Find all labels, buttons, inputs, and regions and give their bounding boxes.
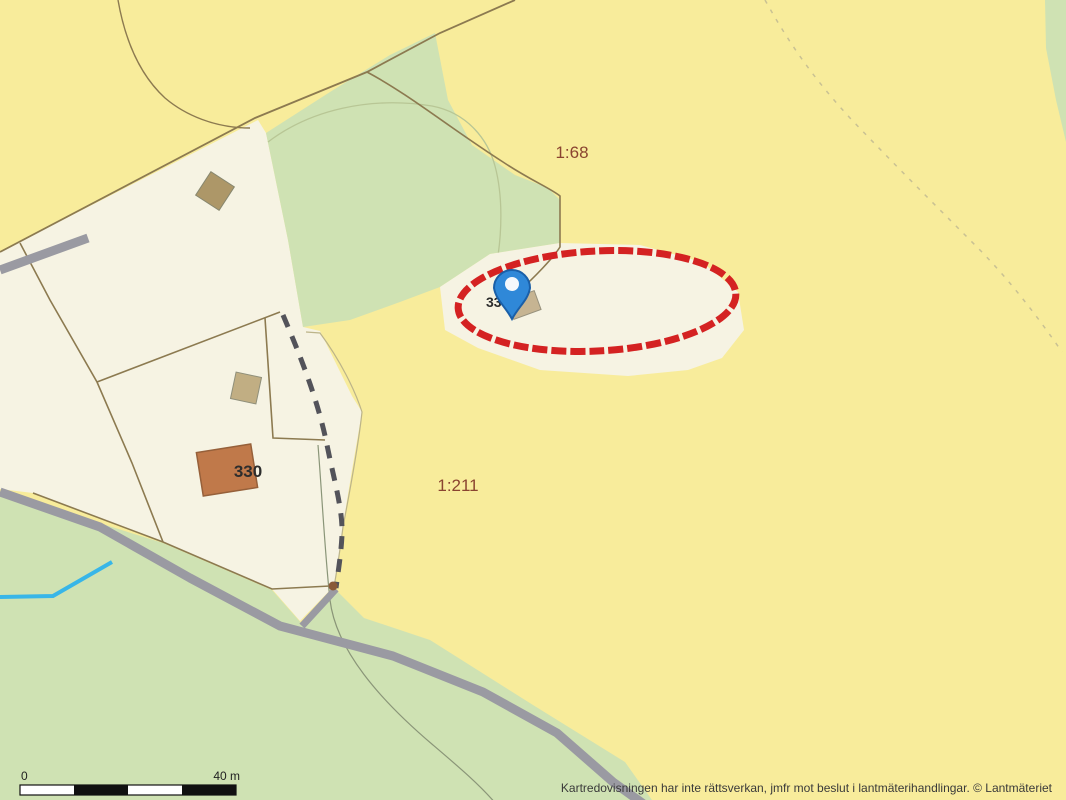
scale-label-end: 40 m [213, 769, 240, 783]
parcel-label-1-211: 1:211 [437, 476, 478, 495]
scale-bar-segment [74, 785, 128, 795]
building-outbuilding-middle [230, 372, 261, 404]
location-pin-center-dot [505, 277, 519, 291]
boundary-marker-dot [329, 582, 338, 591]
attribution-text: Kartredovisningen har inte rättsverkan, … [561, 781, 1053, 795]
parcel-label-1-68: 1:68 [555, 143, 588, 162]
building-label-330: 330 [234, 462, 262, 481]
cadastral-map[interactable]: 1:68 1:211 330 33 0 40 m Kartredovisning… [0, 0, 1066, 800]
scale-label-start: 0 [21, 769, 28, 783]
scale-bar-segment [182, 785, 236, 795]
map-viewport[interactable]: 1:68 1:211 330 33 0 40 m Kartredovisning… [0, 0, 1066, 800]
